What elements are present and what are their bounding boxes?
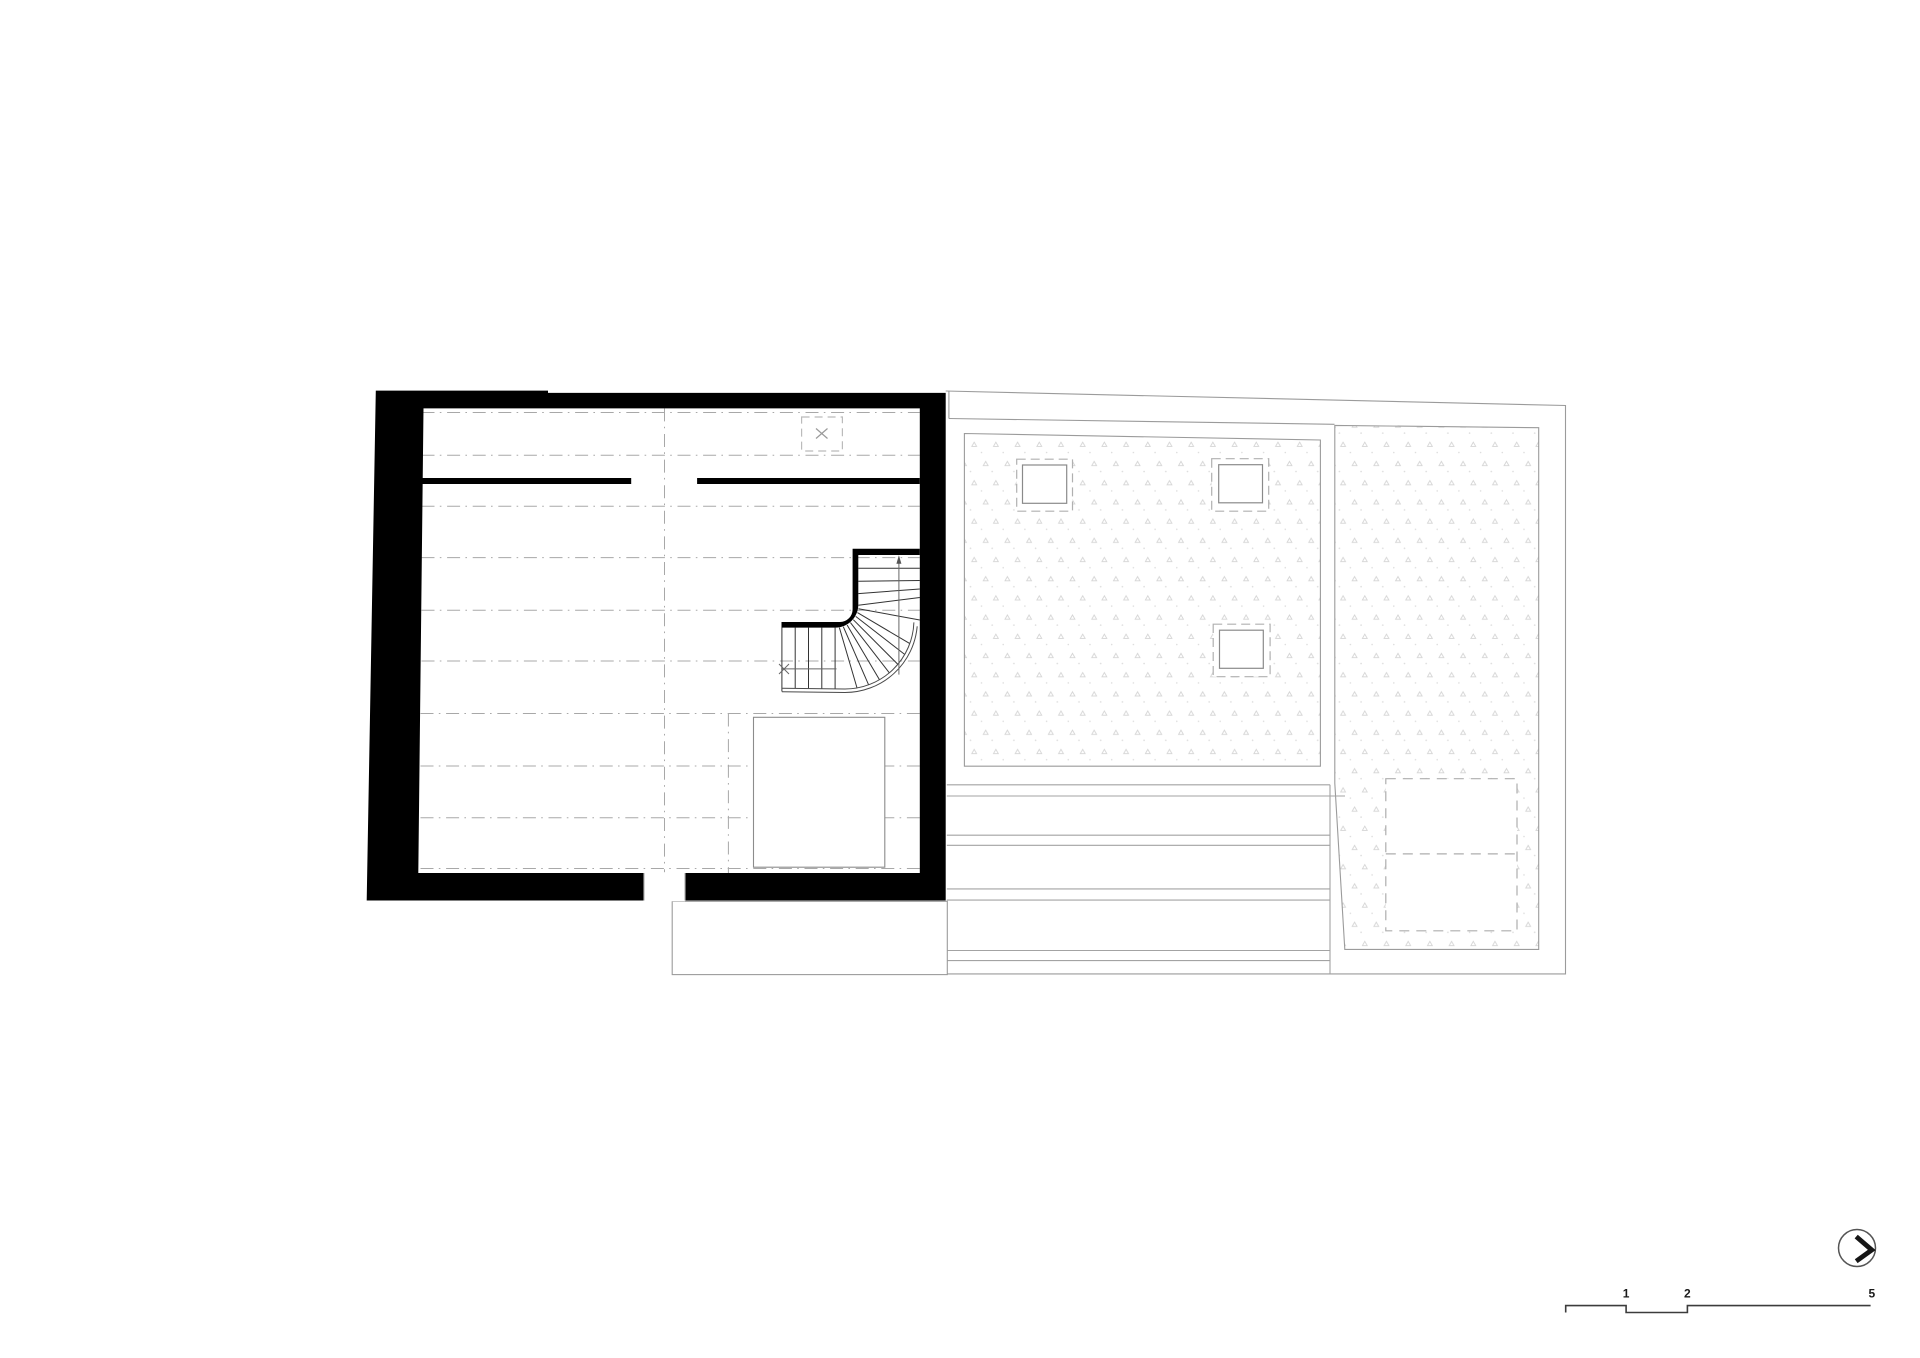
svg-text:1: 1	[1623, 1287, 1630, 1301]
svg-text:5: 5	[1869, 1287, 1876, 1301]
svg-text:2: 2	[1684, 1287, 1691, 1301]
